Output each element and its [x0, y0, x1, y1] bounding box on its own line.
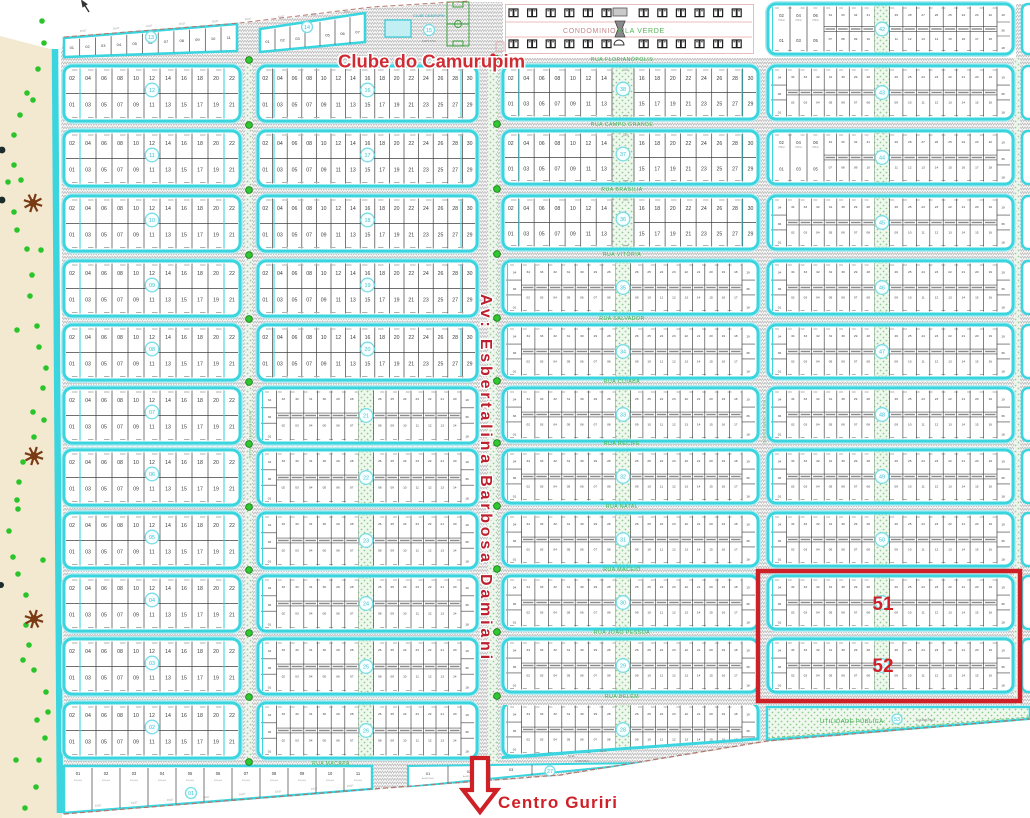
svg-text:25: 25	[908, 648, 912, 652]
svg-text:29: 29	[467, 168, 473, 174]
svg-text:13: 13	[165, 103, 171, 109]
svg-text:23: 23	[935, 522, 939, 526]
svg-text:34: 34	[526, 585, 530, 589]
svg-text:30: 30	[620, 601, 626, 607]
svg-text:30: 30	[580, 712, 584, 716]
svg-text:24: 24	[921, 397, 925, 401]
svg-text:14: 14	[165, 586, 171, 592]
svg-text:24: 24	[660, 397, 664, 401]
svg-text:09: 09	[321, 362, 327, 368]
svg-text:22: 22	[948, 205, 952, 209]
svg-text:20: 20	[709, 522, 713, 526]
svg-text:08: 08	[607, 360, 611, 364]
svg-text:11: 11	[416, 612, 419, 616]
svg-text:15: 15	[181, 550, 187, 556]
svg-text:31: 31	[567, 334, 571, 338]
svg-text:08: 08	[378, 675, 382, 679]
svg-text:13: 13	[440, 739, 444, 743]
svg-text:11: 11	[895, 37, 898, 41]
svg-text:18: 18	[746, 370, 750, 374]
svg-text:15: 15	[709, 360, 713, 364]
svg-text:18: 18	[746, 306, 750, 310]
svg-text:19: 19	[670, 102, 676, 108]
svg-text:22: 22	[229, 460, 235, 466]
svg-text:455,3m²: 455,3m²	[214, 779, 222, 782]
svg-text:44: 44	[879, 156, 885, 162]
svg-text:12: 12	[935, 423, 939, 427]
svg-text:07: 07	[350, 739, 354, 743]
svg-text:14: 14	[697, 548, 701, 552]
svg-text:14: 14	[453, 739, 457, 743]
svg-text:28: 28	[866, 205, 870, 209]
svg-text:28: 28	[607, 648, 611, 652]
svg-text:25: 25	[717, 167, 723, 173]
svg-text:03: 03	[523, 232, 529, 238]
svg-text:07: 07	[594, 296, 598, 300]
svg-text:25: 25	[647, 334, 651, 338]
svg-text:12: 12	[149, 206, 155, 212]
svg-text:01: 01	[69, 298, 75, 304]
svg-text:34: 34	[526, 712, 530, 716]
svg-text:13: 13	[601, 232, 607, 238]
svg-text:20: 20	[709, 712, 713, 716]
svg-text:12: 12	[586, 206, 592, 212]
svg-text:24: 24	[403, 712, 407, 716]
svg-text:34: 34	[829, 140, 833, 144]
svg-text:08: 08	[866, 674, 870, 678]
svg-text:13: 13	[148, 35, 154, 41]
svg-text:32: 32	[553, 459, 557, 463]
svg-text:455,3m²: 455,3m²	[270, 779, 278, 782]
svg-text:25: 25	[717, 232, 723, 238]
svg-text:04: 04	[816, 485, 820, 489]
svg-text:01: 01	[69, 613, 75, 619]
svg-text:07: 07	[854, 485, 858, 489]
svg-text:36: 36	[268, 603, 272, 607]
svg-text:05: 05	[101, 487, 107, 493]
svg-text:16: 16	[722, 674, 726, 678]
svg-text:06: 06	[101, 141, 107, 147]
svg-text:16: 16	[181, 206, 187, 212]
svg-text:04: 04	[309, 486, 313, 490]
svg-text:15,07: 15,07	[95, 803, 102, 807]
svg-text:08: 08	[117, 649, 123, 655]
svg-text:21: 21	[229, 550, 235, 556]
svg-text:RUA CUIABÁ: RUA CUIABÁ	[604, 378, 640, 385]
svg-text:02: 02	[791, 674, 795, 678]
svg-text:22: 22	[229, 271, 235, 277]
svg-text:08: 08	[866, 360, 870, 364]
svg-text:08: 08	[866, 423, 870, 427]
svg-text:23: 23	[935, 459, 939, 463]
svg-text:36: 36	[746, 539, 750, 543]
svg-text:23: 23	[935, 648, 939, 652]
svg-text:CONDOMINIO: CONDOMINIO	[563, 28, 616, 35]
svg-text:33: 33	[540, 397, 544, 401]
svg-text:13: 13	[350, 233, 356, 239]
svg-text:09: 09	[321, 168, 327, 174]
svg-text:26: 26	[635, 334, 639, 338]
svg-text:07: 07	[594, 548, 598, 552]
svg-text:09: 09	[854, 37, 858, 41]
svg-text:03: 03	[804, 360, 808, 364]
svg-text:AVENIDA PROJETADA: AVENIDA PROJETADA	[248, 410, 253, 459]
svg-text:29: 29	[467, 298, 473, 304]
svg-text:34: 34	[620, 350, 626, 356]
svg-text:16: 16	[181, 586, 187, 592]
svg-text:18: 18	[197, 335, 203, 341]
svg-text:22: 22	[229, 523, 235, 529]
svg-text:18: 18	[197, 523, 203, 529]
svg-text:04: 04	[85, 206, 91, 212]
svg-text:18: 18	[1001, 495, 1005, 499]
svg-text:21: 21	[229, 233, 235, 239]
svg-text:23: 23	[935, 75, 939, 79]
svg-text:17: 17	[654, 232, 660, 238]
svg-text:06: 06	[292, 271, 298, 277]
svg-text:22: 22	[685, 648, 689, 652]
svg-text:11: 11	[660, 674, 663, 678]
svg-text:01: 01	[262, 362, 268, 368]
svg-text:02: 02	[282, 486, 286, 490]
svg-text:36: 36	[268, 730, 272, 734]
svg-text:10: 10	[133, 335, 139, 341]
svg-text:20: 20	[453, 397, 457, 401]
svg-text:19: 19	[746, 460, 750, 464]
svg-text:26: 26	[894, 334, 898, 338]
svg-text:10: 10	[866, 37, 870, 41]
svg-text:12: 12	[149, 460, 155, 466]
svg-text:15: 15	[948, 166, 952, 170]
svg-text:02: 02	[69, 713, 75, 719]
svg-text:36: 36	[778, 222, 782, 226]
svg-text:10: 10	[570, 206, 576, 212]
svg-text:17: 17	[734, 674, 738, 678]
svg-text:18: 18	[1001, 621, 1005, 625]
svg-text:21: 21	[408, 298, 414, 304]
svg-text:25: 25	[908, 270, 912, 274]
svg-text:20: 20	[709, 585, 713, 589]
svg-text:33: 33	[540, 522, 544, 526]
svg-text:28: 28	[620, 728, 626, 734]
svg-text:29: 29	[467, 362, 473, 368]
svg-text:32: 32	[553, 522, 557, 526]
svg-text:29: 29	[336, 585, 340, 589]
svg-text:19: 19	[394, 168, 400, 174]
svg-text:07: 07	[350, 486, 354, 490]
svg-text:23: 23	[415, 712, 419, 716]
svg-text:07: 07	[854, 423, 858, 427]
svg-text:36: 36	[746, 602, 750, 606]
svg-text:18: 18	[379, 271, 385, 277]
svg-text:03: 03	[804, 611, 808, 615]
svg-text:31: 31	[829, 648, 833, 652]
svg-text:17: 17	[197, 676, 203, 682]
svg-text:26: 26	[378, 522, 382, 526]
svg-text:36: 36	[1001, 602, 1005, 606]
svg-text:19: 19	[722, 648, 726, 652]
svg-text:18: 18	[1001, 306, 1005, 310]
svg-text:04: 04	[816, 231, 820, 235]
svg-text:17: 17	[197, 550, 203, 556]
svg-text:36: 36	[620, 217, 626, 223]
svg-text:09: 09	[894, 485, 898, 489]
svg-text:07: 07	[555, 232, 561, 238]
svg-text:02: 02	[526, 485, 530, 489]
svg-text:01: 01	[69, 676, 75, 682]
svg-text:15: 15	[975, 611, 979, 615]
svg-text:32: 32	[816, 522, 820, 526]
svg-text:19: 19	[365, 283, 371, 289]
svg-text:09: 09	[894, 423, 898, 427]
svg-text:03: 03	[85, 676, 91, 682]
svg-text:24: 24	[403, 522, 407, 526]
svg-text:26: 26	[378, 397, 382, 401]
svg-text:28: 28	[732, 76, 738, 82]
svg-text:11: 11	[149, 487, 154, 493]
svg-text:03: 03	[85, 550, 91, 556]
svg-text:01: 01	[778, 495, 782, 499]
svg-text:08: 08	[378, 424, 382, 428]
svg-text:19: 19	[722, 334, 726, 338]
svg-text:04: 04	[85, 523, 91, 529]
svg-text:23: 23	[415, 522, 419, 526]
svg-text:25: 25	[438, 298, 444, 304]
svg-text:16: 16	[365, 88, 371, 94]
svg-text:01: 01	[778, 370, 782, 374]
svg-text:20: 20	[213, 271, 219, 277]
svg-text:06: 06	[841, 674, 845, 678]
svg-text:11: 11	[660, 360, 663, 364]
svg-text:26: 26	[894, 648, 898, 652]
svg-text:11: 11	[660, 611, 663, 615]
svg-text:25: 25	[908, 334, 912, 338]
svg-text:21: 21	[686, 232, 692, 238]
svg-text:16: 16	[989, 548, 993, 552]
svg-text:01: 01	[778, 306, 782, 310]
svg-text:15: 15	[181, 298, 187, 304]
svg-text:25: 25	[948, 140, 952, 144]
svg-text:10: 10	[647, 423, 651, 427]
svg-text:13: 13	[685, 548, 689, 552]
svg-text:21: 21	[962, 75, 966, 79]
svg-text:09: 09	[133, 613, 139, 619]
svg-text:08: 08	[117, 398, 123, 404]
svg-text:14: 14	[962, 485, 966, 489]
svg-text:Av: Esbertalina Barbosa Damian: Av: Esbertalina Barbosa Damiani	[477, 294, 494, 663]
svg-text:02: 02	[69, 335, 75, 341]
svg-text:34: 34	[791, 459, 795, 463]
svg-text:28: 28	[866, 75, 870, 79]
svg-text:02: 02	[282, 612, 286, 616]
svg-text:RUA FLORIANÓPOLIS: RUA FLORIANÓPOLIS	[591, 56, 653, 63]
svg-text:13: 13	[165, 362, 171, 368]
svg-text:19: 19	[1001, 586, 1005, 590]
svg-text:30: 30	[841, 585, 845, 589]
svg-text:01: 01	[513, 370, 517, 374]
svg-text:36: 36	[513, 414, 517, 418]
svg-text:23: 23	[975, 13, 979, 17]
svg-text:22: 22	[685, 712, 689, 716]
svg-text:10: 10	[570, 141, 576, 147]
svg-text:32: 32	[553, 397, 557, 401]
svg-text:19: 19	[746, 271, 750, 275]
svg-text:14: 14	[453, 675, 457, 679]
svg-text:04: 04	[85, 460, 91, 466]
svg-text:31: 31	[309, 522, 313, 526]
svg-text:07: 07	[594, 360, 598, 364]
svg-text:18: 18	[734, 459, 738, 463]
svg-text:36: 36	[465, 415, 469, 419]
svg-text:17: 17	[197, 362, 203, 368]
svg-text:01: 01	[778, 111, 782, 115]
svg-text:05: 05	[188, 771, 193, 776]
svg-text:16: 16	[181, 271, 187, 277]
svg-text:17: 17	[734, 548, 738, 552]
svg-text:05: 05	[829, 548, 833, 552]
svg-text:03: 03	[295, 549, 299, 553]
svg-text:06: 06	[101, 398, 107, 404]
svg-text:01: 01	[513, 684, 517, 688]
svg-text:09: 09	[390, 549, 394, 553]
svg-text:11: 11	[416, 675, 419, 679]
svg-text:21: 21	[686, 102, 692, 108]
svg-text:20: 20	[975, 585, 979, 589]
svg-text:15,07: 15,07	[347, 783, 354, 787]
svg-text:04: 04	[523, 206, 529, 212]
svg-text:06: 06	[292, 141, 298, 147]
svg-text:23: 23	[672, 270, 676, 274]
svg-text:08: 08	[378, 612, 382, 616]
svg-text:05: 05	[323, 739, 327, 743]
svg-text:36: 36	[778, 287, 782, 291]
svg-text:14: 14	[962, 423, 966, 427]
svg-text:08: 08	[117, 271, 123, 277]
svg-text:03: 03	[277, 168, 283, 174]
svg-text:06: 06	[539, 206, 545, 212]
svg-text:31: 31	[829, 75, 833, 79]
svg-text:22: 22	[229, 398, 235, 404]
svg-text:19: 19	[213, 740, 219, 746]
svg-text:50,40: 50,40	[568, 754, 575, 758]
svg-text:07: 07	[854, 360, 858, 364]
svg-text:34: 34	[268, 649, 272, 653]
svg-text:05: 05	[101, 298, 107, 304]
svg-text:19: 19	[394, 103, 400, 109]
svg-text:07: 07	[555, 102, 561, 108]
svg-text:12: 12	[149, 398, 155, 404]
svg-text:31: 31	[567, 397, 571, 401]
svg-text:24: 24	[921, 648, 925, 652]
svg-text:15,07: 15,07	[113, 26, 120, 31]
svg-text:07: 07	[306, 233, 312, 239]
svg-text:29: 29	[894, 13, 898, 17]
svg-text:14: 14	[165, 649, 171, 655]
svg-text:19: 19	[989, 585, 993, 589]
svg-text:04: 04	[117, 42, 122, 47]
svg-text:06: 06	[336, 739, 340, 743]
svg-text:21: 21	[697, 648, 701, 652]
svg-text:25: 25	[908, 459, 912, 463]
svg-text:10: 10	[133, 460, 139, 466]
svg-text:19: 19	[1001, 206, 1005, 210]
svg-text:01: 01	[188, 791, 194, 797]
svg-text:12: 12	[149, 586, 155, 592]
svg-text:32: 32	[295, 648, 299, 652]
svg-text:09: 09	[894, 360, 898, 364]
svg-text:02: 02	[508, 141, 514, 147]
svg-text:29: 29	[854, 334, 858, 338]
svg-text:23: 23	[935, 205, 939, 209]
svg-text:18: 18	[1001, 241, 1005, 245]
svg-text:26: 26	[438, 335, 444, 341]
svg-text:25: 25	[438, 233, 444, 239]
svg-text:28: 28	[866, 270, 870, 274]
svg-text:36: 36	[778, 602, 782, 606]
svg-text:07: 07	[854, 611, 858, 615]
svg-text:14: 14	[165, 271, 171, 277]
svg-text:04: 04	[85, 398, 91, 404]
svg-text:13: 13	[948, 548, 952, 552]
svg-text:22: 22	[229, 141, 235, 147]
svg-text:26: 26	[378, 459, 382, 463]
svg-text:25: 25	[717, 102, 723, 108]
svg-text:28: 28	[866, 522, 870, 526]
svg-text:36: 36	[778, 351, 782, 355]
svg-text:26: 26	[894, 75, 898, 79]
svg-text:12: 12	[149, 141, 155, 147]
svg-text:28: 28	[732, 141, 738, 147]
svg-text:07: 07	[117, 168, 123, 174]
svg-text:28: 28	[908, 13, 912, 17]
svg-text:25: 25	[647, 712, 651, 716]
svg-text:14: 14	[697, 738, 701, 742]
svg-text:51: 51	[872, 594, 894, 615]
svg-text:19: 19	[213, 613, 219, 619]
svg-text:22: 22	[948, 522, 952, 526]
svg-text:32: 32	[854, 140, 858, 144]
svg-text:09: 09	[894, 674, 898, 678]
svg-text:25: 25	[390, 585, 394, 589]
svg-text:08: 08	[607, 423, 611, 427]
svg-text:02: 02	[791, 296, 795, 300]
svg-text:21: 21	[440, 459, 444, 463]
svg-text:15: 15	[975, 360, 979, 364]
svg-text:08: 08	[607, 738, 611, 742]
svg-text:03: 03	[804, 548, 808, 552]
svg-text:25: 25	[390, 648, 394, 652]
svg-text:24: 24	[921, 522, 925, 526]
svg-text:22: 22	[229, 649, 235, 655]
svg-text:10: 10	[647, 360, 651, 364]
svg-text:30: 30	[467, 335, 473, 341]
svg-text:3.874,77m²: 3.874,77m²	[422, 39, 436, 43]
svg-text:20: 20	[975, 522, 979, 526]
svg-text:30: 30	[841, 397, 845, 401]
svg-text:25: 25	[647, 270, 651, 274]
svg-text:CLUBE CAMURUPIM: CLUBE CAMURUPIM	[413, 14, 445, 18]
svg-text:23: 23	[423, 362, 429, 368]
svg-text:05: 05	[567, 360, 571, 364]
svg-text:16: 16	[989, 231, 993, 235]
svg-text:03: 03	[509, 767, 514, 772]
svg-text:15,07: 15,07	[146, 23, 153, 28]
svg-text:02: 02	[526, 548, 530, 552]
svg-text:18: 18	[465, 435, 469, 439]
svg-text:22: 22	[428, 648, 432, 652]
svg-text:14: 14	[962, 360, 966, 364]
svg-text:20: 20	[975, 648, 979, 652]
